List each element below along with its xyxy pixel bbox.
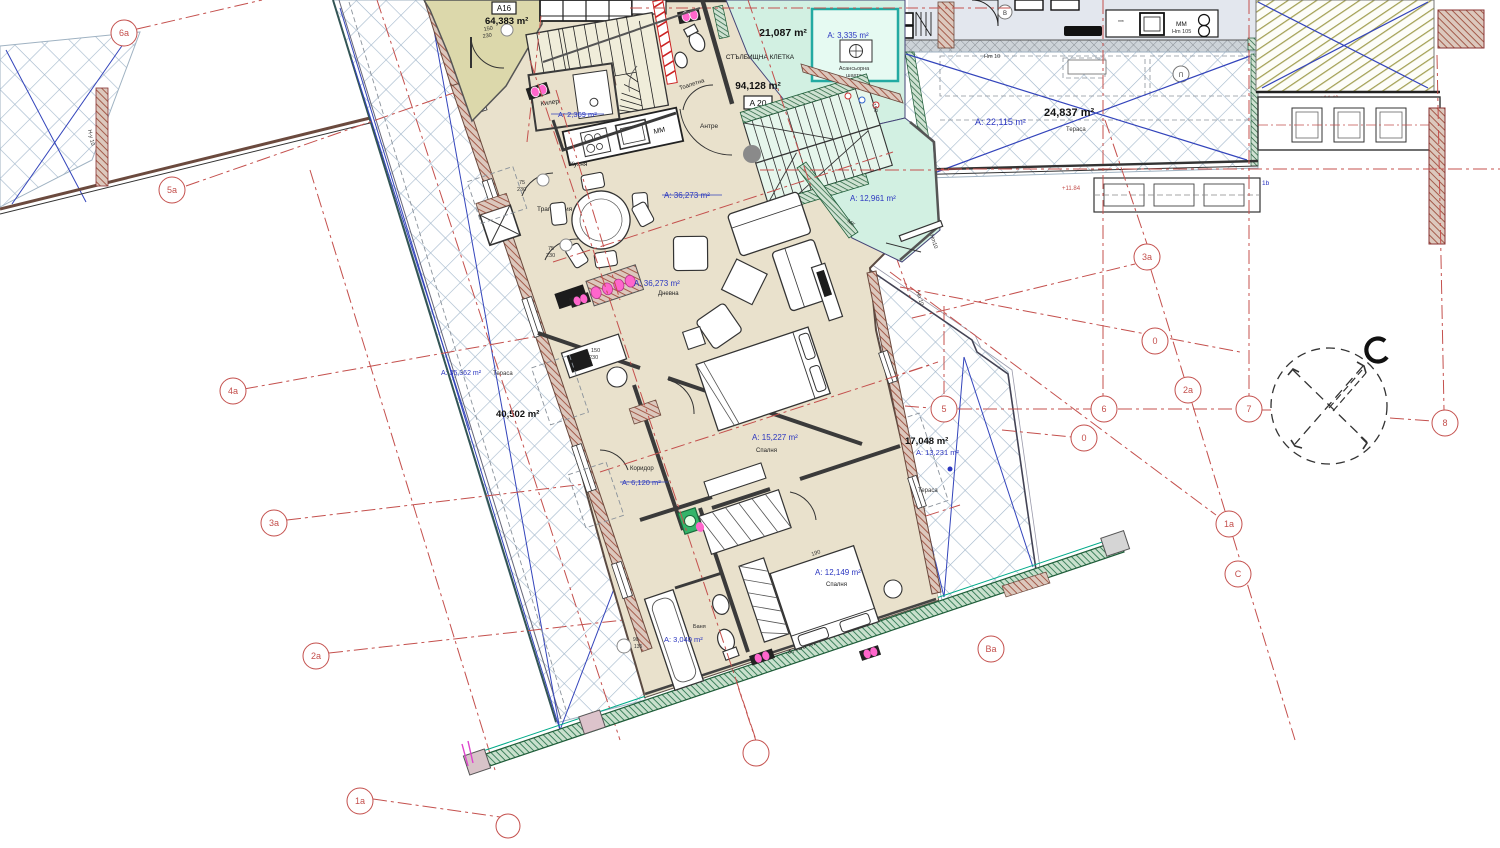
svg-text:A: 35,362 m²: A: 35,362 m² — [441, 370, 482, 377]
svg-text:+11.84: +11.84 — [1062, 186, 1081, 192]
svg-text:Баня: Баня — [693, 624, 706, 630]
svg-text:40,502 m²: 40,502 m² — [496, 409, 539, 420]
svg-text:Тераса: Тераса — [493, 371, 513, 377]
svg-text:64,383 m²: 64,383 m² — [485, 16, 528, 27]
svg-text:П: П — [1179, 73, 1183, 79]
svg-text:17,048 m²: 17,048 m² — [905, 436, 948, 447]
svg-text:Ва: Ва — [985, 644, 996, 654]
svg-text:135: 135 — [634, 644, 643, 650]
svg-text:C: C — [1235, 569, 1242, 579]
svg-text:A: 36,273 m²: A: 36,273 m² — [664, 191, 710, 200]
svg-text:A: 3,335 m²: A: 3,335 m² — [827, 31, 869, 40]
svg-text:A16: A16 — [497, 4, 512, 13]
svg-text:Hm 10: Hm 10 — [984, 54, 1000, 60]
svg-text:75: 75 — [548, 246, 554, 252]
svg-text:Спалня: Спалня — [826, 582, 847, 588]
svg-text:A: 12,149 m²: A: 12,149 m² — [815, 568, 861, 577]
svg-text:A: 22,115 m²: A: 22,115 m² — [975, 117, 1026, 127]
svg-text:1a: 1a — [1224, 519, 1234, 529]
svg-text:0: 0 — [1152, 336, 1157, 346]
svg-text:24,837 m²: 24,837 m² — [1044, 107, 1094, 119]
svg-text:Hm10: Hm10 — [928, 234, 938, 250]
svg-text:A: 36,273 m²: A: 36,273 m² — [634, 279, 680, 288]
svg-text:A: 6,120 m²: A: 6,120 m² — [622, 478, 661, 487]
svg-text:75: 75 — [519, 180, 525, 186]
svg-text:A: 3,040 m²: A: 3,040 m² — [664, 635, 703, 644]
svg-text:4a: 4a — [228, 386, 238, 396]
svg-text:1a: 1a — [355, 796, 365, 806]
svg-text:2a: 2a — [311, 651, 321, 661]
svg-text:3a: 3a — [269, 518, 279, 528]
svg-text:Тераса: Тераса — [918, 488, 938, 494]
svg-text:1b: 1b — [1262, 180, 1270, 187]
svg-text:Спалня: Спалня — [756, 448, 777, 454]
svg-text:230: 230 — [546, 253, 555, 259]
svg-text:Асансьорна: Асансьорна — [839, 66, 870, 72]
svg-text:Дневна: Дневна — [658, 291, 679, 297]
svg-text:7: 7 — [1246, 404, 1251, 414]
svg-text:5: 5 — [941, 404, 946, 414]
svg-text:***: *** — [1118, 20, 1124, 26]
svg-text:Коридор: Коридор — [630, 466, 654, 472]
svg-text:Тераса: Тераса — [1066, 127, 1086, 133]
svg-text:A: 12,961 m²: A: 12,961 m² — [850, 194, 896, 203]
svg-text:94,128 m²: 94,128 m² — [735, 81, 781, 92]
svg-text:В: В — [1003, 11, 1007, 17]
svg-text:Hm 105: Hm 105 — [1172, 29, 1191, 35]
svg-text:Антре: Антре — [700, 123, 719, 130]
svg-text:3a: 3a — [1142, 252, 1152, 262]
svg-text:A: 13,231 m²: A: 13,231 m² — [916, 448, 959, 457]
svg-text:90: 90 — [633, 637, 639, 643]
svg-text:8: 8 — [1442, 418, 1447, 428]
svg-text:СТЪЛБИЩНА КЛЕТКА: СТЪЛБИЩНА КЛЕТКА — [726, 54, 795, 61]
svg-text:A: 15,227 m²: A: 15,227 m² — [752, 433, 798, 442]
svg-text:0: 0 — [1081, 433, 1086, 443]
svg-text:MM: MM — [1176, 21, 1187, 28]
svg-text:2a: 2a — [1183, 385, 1193, 395]
svg-text:6a: 6a — [119, 28, 129, 38]
svg-text:21,087 m²: 21,087 m² — [759, 27, 807, 39]
svg-text:5a: 5a — [167, 185, 177, 195]
svg-text:230: 230 — [589, 355, 598, 361]
svg-text:150: 150 — [591, 348, 600, 354]
svg-text:6: 6 — [1101, 404, 1106, 414]
